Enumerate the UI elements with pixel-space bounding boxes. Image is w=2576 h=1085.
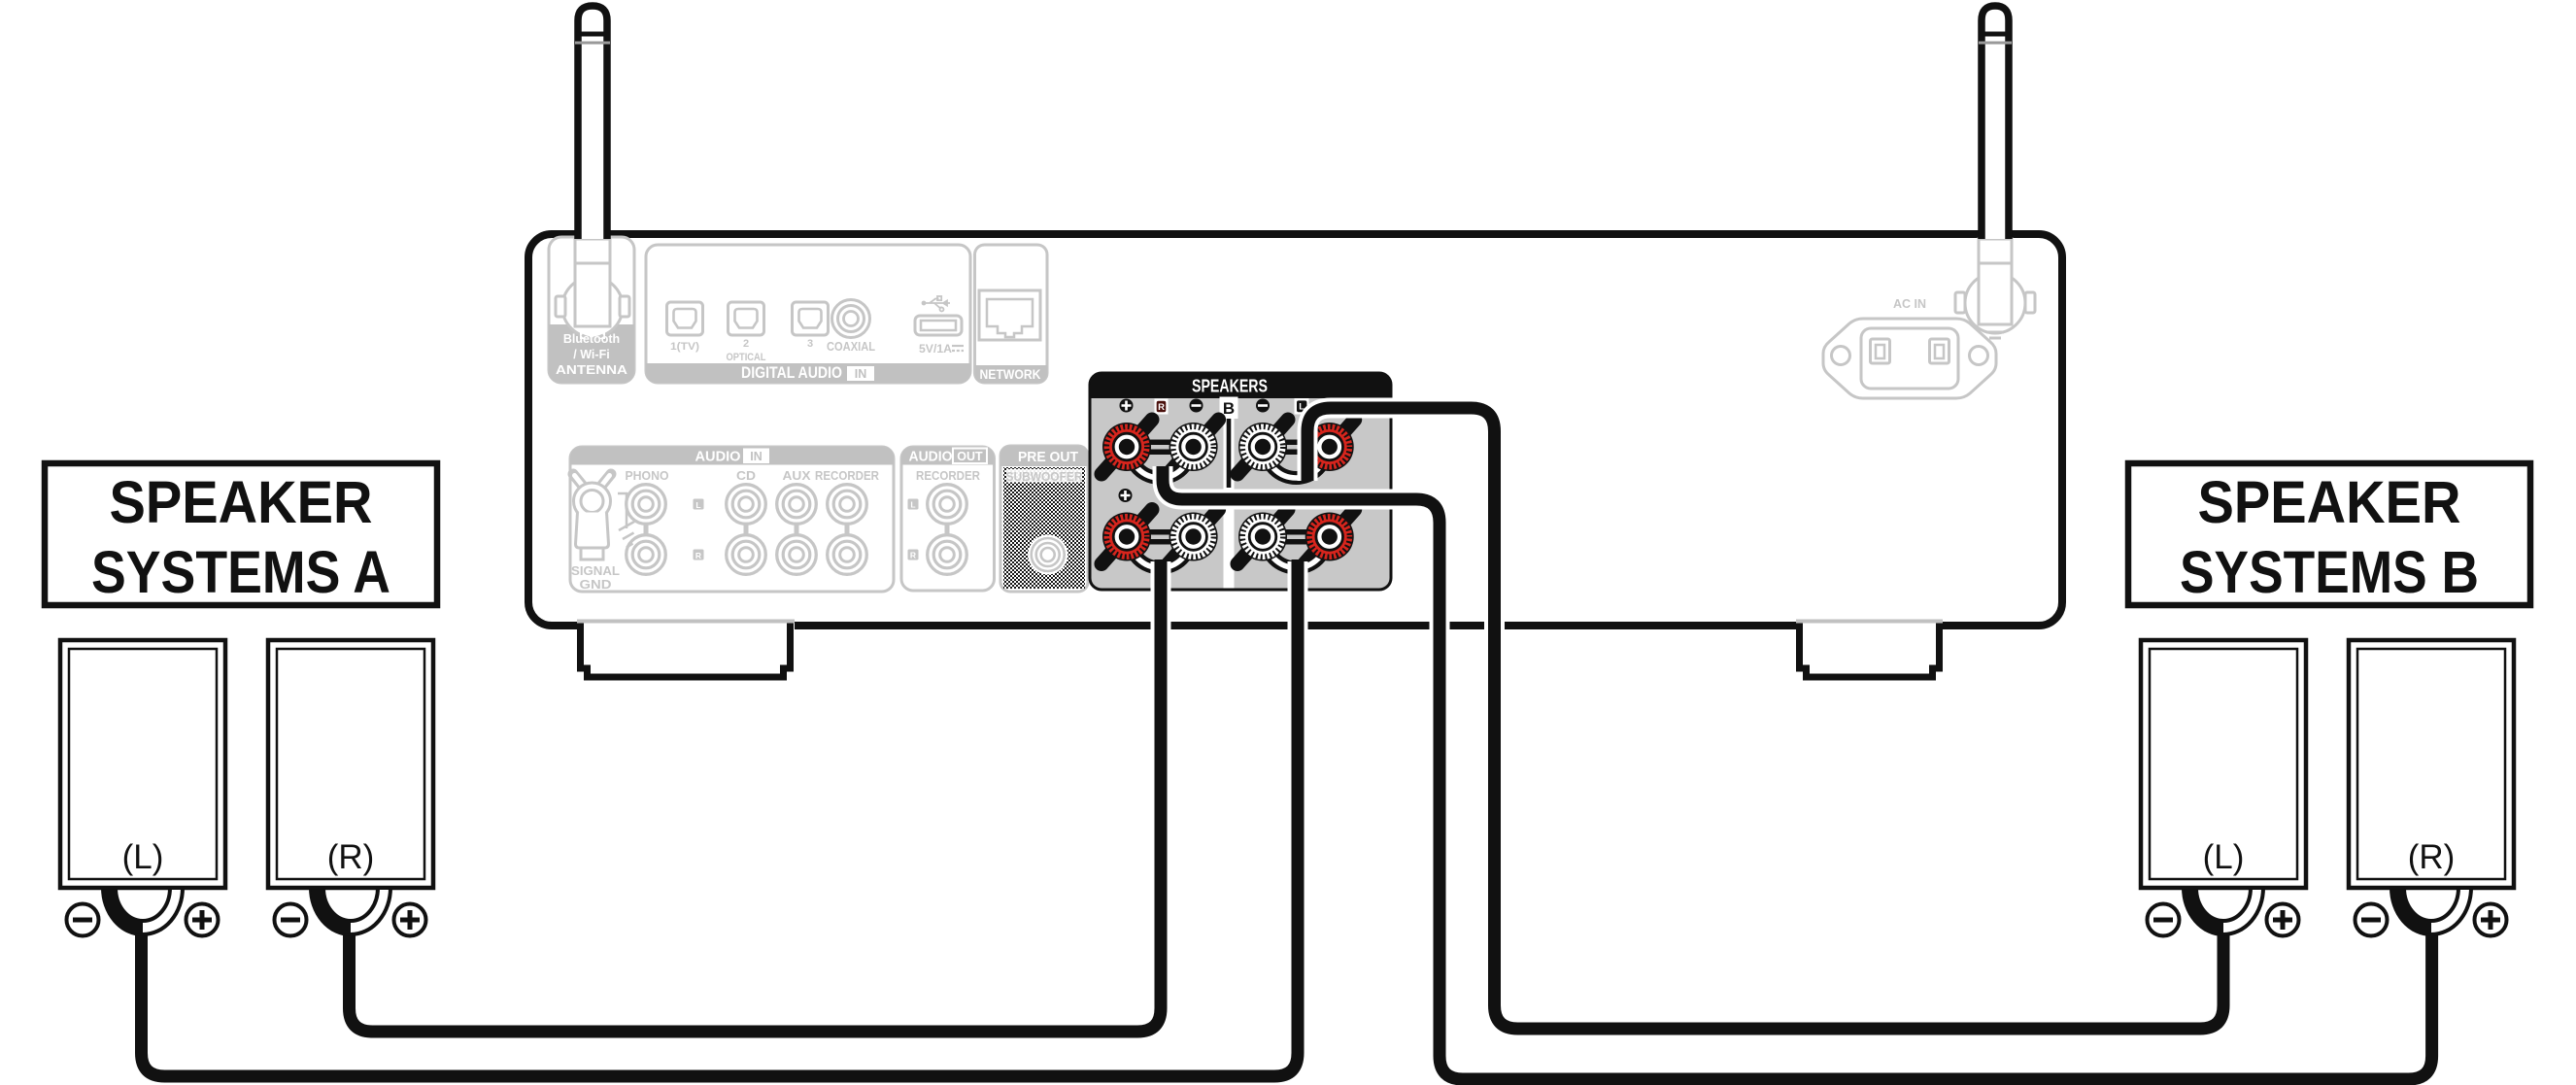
svg-text:SYSTEMS B: SYSTEMS B xyxy=(2180,539,2479,605)
svg-text:2: 2 xyxy=(743,338,749,350)
svg-text:5V/1A: 5V/1A xyxy=(919,344,952,356)
svg-text:RECORDER: RECORDER xyxy=(916,469,980,483)
svg-text:Bluetooth: Bluetooth xyxy=(563,332,620,346)
svg-text:IN: IN xyxy=(855,367,867,381)
svg-text:R: R xyxy=(910,551,916,560)
svg-text:1(TV): 1(TV) xyxy=(670,341,699,353)
svg-text:AUDIO: AUDIO xyxy=(695,449,741,465)
svg-text:SYSTEMS A: SYSTEMS A xyxy=(91,539,390,605)
svg-text:SIGNAL: SIGNAL xyxy=(571,564,620,578)
svg-text:L: L xyxy=(695,500,700,510)
svg-text:SUBWOOFER: SUBWOOFER xyxy=(1006,470,1083,484)
svg-text:OUT: OUT xyxy=(957,450,983,463)
svg-text:3: 3 xyxy=(807,338,813,350)
svg-text:B: B xyxy=(1223,399,1235,418)
svg-text:R: R xyxy=(695,551,701,560)
svg-text:GND: GND xyxy=(580,578,612,592)
svg-text:(L): (L) xyxy=(122,838,164,876)
svg-text:COAXIAL: COAXIAL xyxy=(827,340,875,354)
svg-text:(R): (R) xyxy=(2408,838,2456,876)
svg-text:PRE OUT: PRE OUT xyxy=(1018,449,1078,465)
svg-text:SPEAKER: SPEAKER xyxy=(110,469,373,535)
svg-text:AUX: AUX xyxy=(783,469,812,483)
svg-text:SPEAKER: SPEAKER xyxy=(2198,469,2461,535)
svg-text:R: R xyxy=(1158,402,1165,413)
svg-text:/ Wi-Fi: / Wi-Fi xyxy=(573,348,609,361)
svg-text:RECORDER: RECORDER xyxy=(815,469,879,483)
svg-text:CD: CD xyxy=(736,469,756,483)
svg-text:OPTICAL: OPTICAL xyxy=(727,352,766,363)
svg-text:ANTENNA: ANTENNA xyxy=(556,362,628,377)
svg-text:AUDIO: AUDIO xyxy=(909,449,953,465)
svg-text:(R): (R) xyxy=(327,838,375,876)
svg-text:PHONO: PHONO xyxy=(626,469,669,483)
svg-text:AC IN: AC IN xyxy=(1893,297,1926,311)
svg-text:L: L xyxy=(910,500,915,510)
svg-text:IN: IN xyxy=(750,450,763,463)
svg-text:(L): (L) xyxy=(2203,838,2245,876)
svg-text:DIGITAL AUDIO: DIGITAL AUDIO xyxy=(741,364,842,382)
svg-text:SPEAKERS: SPEAKERS xyxy=(1192,377,1268,396)
svg-text:NETWORK: NETWORK xyxy=(980,367,1041,382)
